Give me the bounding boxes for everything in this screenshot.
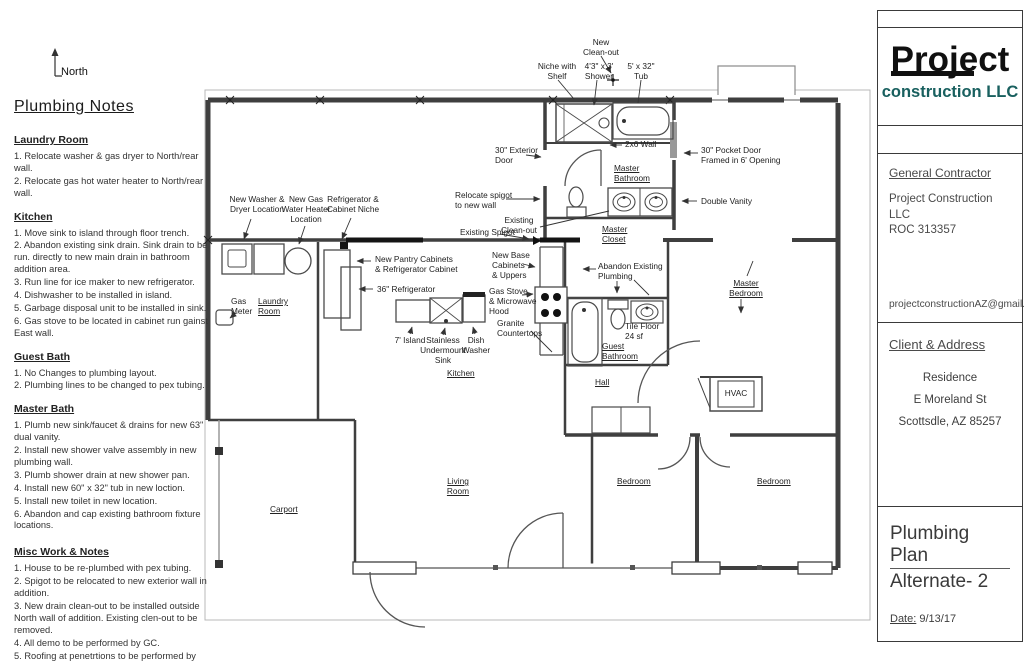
label-tub: 5' x 32" Tub [627,62,654,82]
fixtures [216,103,762,433]
note-item: 4. Dishwasher to be installed in island. [14,290,214,302]
label-master-bedroom: Master Bedroom [729,279,763,299]
sheet-title-section: Plumbing Plan Alternate- 2 Date: 9/13/17 [878,507,1022,641]
base-cabinets-counter [535,247,567,355]
label-master-bathroom: Master Bathroom [614,164,650,184]
note-section-guest-bath: Guest Bath 1. No Changes to plumbing lay… [14,351,214,393]
contractor-company: Project Construction LLC [889,192,1011,223]
label-laundry-room: Laundry Room [258,297,288,317]
label-exterior-door: 30" Exterior Door [495,146,538,166]
kitchen-island [396,292,485,323]
note-heading: Master Bath [14,403,214,415]
bedroom-closet [592,407,650,433]
label-pocket-door: 30" Pocket Door Framed in 6' Opening [701,146,781,166]
contractor-email: projectconstructionAZ@gmail.com [889,299,1011,310]
carport-posts [215,420,223,568]
note-item: 6. Abandon and cap existing bathroom fix… [14,509,214,533]
logo-underline-bar [891,71,974,76]
label-dish-washer: Dish Washer [462,336,490,356]
notes-title: Plumbing Notes [14,98,214,116]
pantry-cabinets [324,250,361,330]
label-living-room: Living Room [447,477,469,497]
note-section-master-bath: Master Bath 1. Plumb new sink/faucet & d… [14,403,214,532]
general-contractor-heading: General Contractor [889,166,1011,180]
label-hvac: HVAC [725,389,747,399]
logo-wordmark: Project [891,40,1010,80]
note-item: 6. Gas stove to be located in cabinet ru… [14,316,214,340]
note-item: 1. House to be re-plumbed with pex tubin… [14,563,214,575]
note-item: 1. Plumb new sink/faucet & drains for ne… [14,420,214,444]
client-line-street: E Moreland St [889,390,1011,412]
client-address-section: Client & Address Residence E Moreland St… [878,323,1022,507]
note-item: 1. Relocate washer & gas dryer to North/… [14,151,214,175]
note-item: 5. Roofing at penetrtions to be performe… [14,651,214,663]
label-gas-stove-hood: Gas Stove & Microwave Hood [489,287,537,316]
note-item: 2. Abandon existing sink drain. Sink dra… [14,240,214,276]
gas-stove [535,287,567,323]
note-item: 5. Garbage disposal unit to be installed… [14,303,214,315]
note-section-laundry-room: Laundry Room 1. Relocate washer & gas dr… [14,134,214,200]
master-tub [613,103,673,139]
label-36-refrigerator: 36" Refrigerator [377,285,435,295]
note-item: 5. Install new toilet in new location. [14,496,214,508]
label-2x6-wall: 2x6 Wall [625,140,657,150]
company-logo: Project construction LLC [878,28,1022,126]
sheet-title-line2: Alternate- 2 [890,571,1010,593]
general-contractor-section: General Contractor Project Construction … [878,154,1022,323]
note-heading: Misc Work & Notes [14,546,214,558]
note-item: 2. Install new shower valve assembly in … [14,445,214,469]
washer-dryer [222,244,284,274]
label-bedroom-2: Bedroom [757,477,791,487]
label-existing-spigot: Existing Spigot [460,228,515,238]
label-granite-countertops: Granite Countertops [497,319,542,339]
guest-sink [631,301,663,323]
sheet-date: Date: 9/13/17 [890,613,1010,625]
note-item: 3. New drain clean-out to be installed o… [14,601,214,637]
note-item: 2. Plumbing lines to be changed to pex t… [14,380,214,392]
label-stainless-sink: Stainless Undermount Sink [420,336,466,365]
client-line-residence: Residence [889,368,1011,390]
label-hall: Hall [595,378,609,388]
note-item: 3. Run line for ice maker to new refrige… [14,277,214,289]
label-new-clean-out: New Clean-out [583,38,619,58]
note-item: 4. Install new 60" x 32" tub in new loct… [14,483,214,495]
label-gas-meter: Gas Meter [231,297,252,317]
client-heading: Client & Address [889,337,1011,352]
label-new-pantry-cabinets: New Pantry Cabinets & Refrigerator Cabin… [375,255,458,275]
label-abandon-existing-plumbing: Abandon Existing Plumbing [598,262,663,282]
date-label: Date: [890,613,916,625]
label-kitchen: Kitchen [447,369,475,379]
notes-panel: Plumbing Notes Laundry Room 1. Relocate … [14,98,214,663]
label-shower: 4'3" x 3' Shower [585,62,614,82]
label-new-gas-water-heater: New Gas Water Heater Location [281,195,330,224]
north-label: North [61,66,88,79]
note-item: 3. Plumb shower drain at new shower pan. [14,470,214,482]
label-double-vanity: Double Vanity [701,197,752,207]
client-line-city: Scottsdle, AZ 85257 [889,412,1011,434]
doors [370,122,730,627]
note-section-kitchen: Kitchen 1. Move sink to island through f… [14,211,214,340]
note-item: 1. No Changes to plumbing layout. [14,368,214,380]
note-item: 4. All demo to be performed by GC. [14,638,214,650]
guest-tub [568,298,602,366]
note-heading: Guest Bath [14,351,214,363]
existing-spigot-symbol [533,236,541,245]
label-new-washer-dryer: New Washer & Dryer Location [229,195,284,215]
label-carport: Carport [270,505,298,515]
shower [556,104,612,142]
master-toilet [567,187,586,217]
note-item: 2. Spigot to be relocated to new exterio… [14,576,214,600]
note-heading: Kitchen [14,211,214,223]
title-block-top-strip [878,11,1022,28]
label-tile-floor: Tile Floor 24 sf [625,322,659,342]
contractor-roc: ROC 313357 [889,223,1011,239]
label-master-closet: Master Closet [602,225,627,245]
title-block: Project construction LLC General Contrac… [877,10,1023,642]
plan-sheet: North New Clean-out Niche with Shelf 4'3… [0,0,1024,663]
note-item: 1. Move sink to island through floor tre… [14,228,214,240]
label-refrigerator-cabinet-niche: Refrigerator & Cabinet Niche [327,195,379,215]
note-heading: Laundry Room [14,134,214,146]
label-new-base-cabinets: New Base Cabinets & Uppers [492,251,530,280]
label-relocate-spigot: Relocate spigot to new wall [455,191,512,211]
sheet-title-line1: Plumbing Plan [890,523,1010,569]
date-value: 9/13/17 [919,613,956,625]
double-vanity [608,188,672,216]
water-heater [285,248,311,274]
note-item: 2. Relocate gas hot water heater to Nort… [14,176,214,200]
title-block-spacer [878,126,1022,154]
logo-secondary-text: construction LLC [878,83,1022,102]
label-niche-with-shelf: Niche with Shelf [538,62,576,82]
label-bedroom-1: Bedroom [617,477,651,487]
label-guest-bathroom: Guest Bathroom [602,342,638,362]
note-section-misc: Misc Work & Notes 1. House to be re-plum… [14,546,214,663]
